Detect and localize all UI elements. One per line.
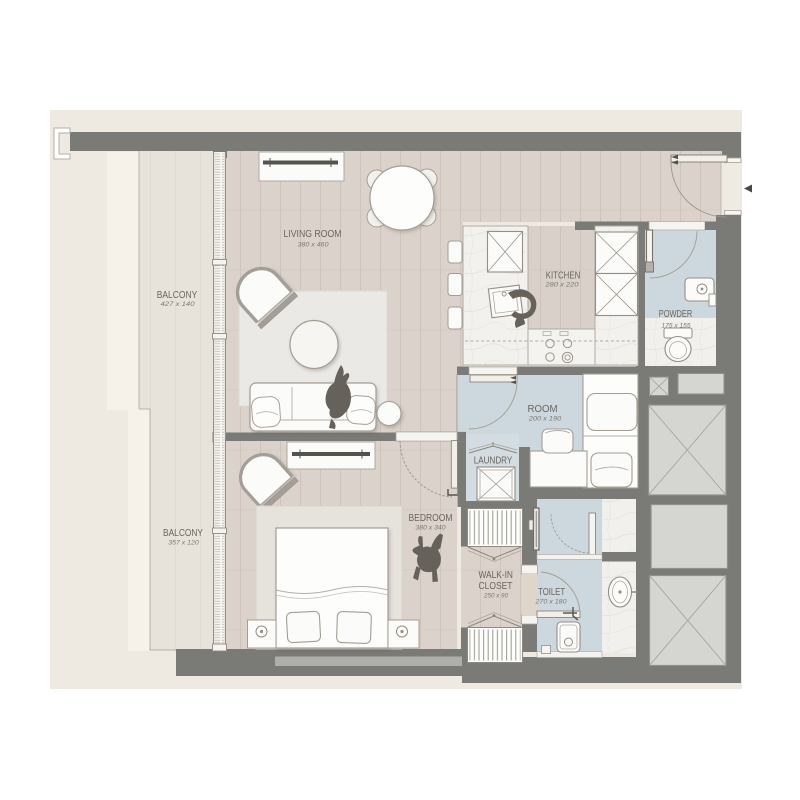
svg-text:BALCONY: BALCONY bbox=[163, 528, 203, 539]
svg-text:200 x 190: 200 x 190 bbox=[528, 416, 562, 423]
svg-text:BEDROOM: BEDROOM bbox=[409, 513, 453, 524]
svg-text:380 x 340: 380 x 340 bbox=[416, 525, 446, 532]
svg-text:TOILET: TOILET bbox=[538, 587, 565, 598]
svg-text:KITCHEN: KITCHEN bbox=[546, 271, 581, 282]
svg-text:380 x 460: 380 x 460 bbox=[298, 242, 329, 249]
svg-text:357 x 120: 357 x 120 bbox=[168, 540, 199, 547]
svg-text:427 x 140: 427 x 140 bbox=[161, 301, 195, 308]
svg-text:BALCONY: BALCONY bbox=[157, 290, 198, 301]
svg-text:LIVING ROOM: LIVING ROOM bbox=[284, 229, 342, 240]
svg-text:175 x 155: 175 x 155 bbox=[662, 323, 691, 330]
svg-text:280 x 220: 280 x 220 bbox=[544, 282, 578, 289]
svg-text:270 x 180: 270 x 180 bbox=[534, 598, 566, 605]
svg-text:CLOSET: CLOSET bbox=[479, 581, 513, 592]
svg-text:WALK-IN: WALK-IN bbox=[478, 570, 513, 581]
svg-text:LAUNDRY: LAUNDRY bbox=[474, 456, 513, 467]
svg-text:250 x 90: 250 x 90 bbox=[483, 593, 508, 600]
svg-text:ROOM: ROOM bbox=[528, 404, 558, 415]
svg-text:POWDER: POWDER bbox=[659, 309, 693, 320]
